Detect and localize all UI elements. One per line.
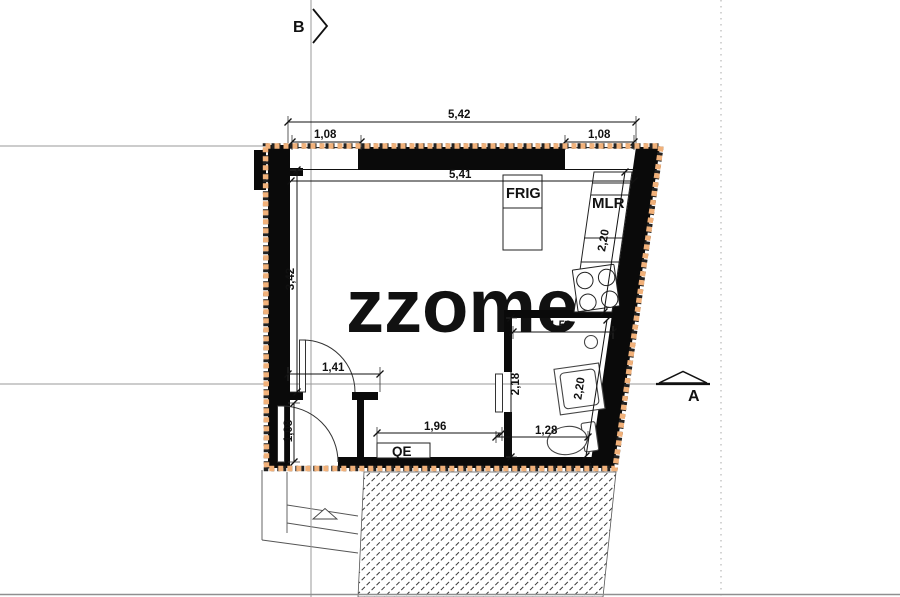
section-a-label: A — [688, 388, 700, 405]
fridge-label: FRIG — [506, 186, 541, 202]
dim-bath-depth: 2,18 — [510, 372, 522, 395]
electrical-panel: QE — [377, 443, 430, 459]
watermark: zzome® — [346, 264, 595, 349]
section-marker-a: A — [656, 372, 710, 406]
wall-top-center — [358, 147, 565, 170]
dim-alcove: 1,96 — [424, 421, 446, 433]
section-b-arrow-icon — [313, 9, 327, 43]
dim-wc: 1,28 — [535, 425, 558, 437]
entry-ramp — [262, 470, 358, 553]
electrical-panel-label: QE — [392, 444, 412, 459]
section-b-label: B — [293, 19, 305, 36]
slope-arrow-icon — [313, 509, 337, 520]
sink — [585, 336, 598, 349]
section-a-arrow-icon — [659, 372, 707, 384]
wall-entry-vertical — [357, 400, 364, 457]
dim-entry-door: 1,08 — [283, 419, 295, 442]
dim-room-depth: 3,42 — [285, 268, 297, 290]
dim-top-total: 5,42 — [448, 109, 470, 121]
floor-plan-canvas: zzome® — [0, 0, 900, 597]
site-hatch — [358, 472, 616, 597]
dim-window-left: 1,08 — [314, 129, 337, 141]
section-marker-b: B — [293, 9, 327, 43]
wall-entry-stub-right — [352, 392, 378, 400]
dim-interior-door: 1,41 — [322, 362, 345, 374]
bathroom-door-leaf — [496, 374, 503, 412]
floor-plan-page: zzome® — [0, 0, 900, 597]
cooktop — [572, 264, 619, 312]
dim-bath-width: 1,59 — [549, 320, 571, 332]
dim-interior-width: 5,41 — [449, 169, 472, 181]
dim-window-right: 1,08 — [588, 129, 611, 141]
